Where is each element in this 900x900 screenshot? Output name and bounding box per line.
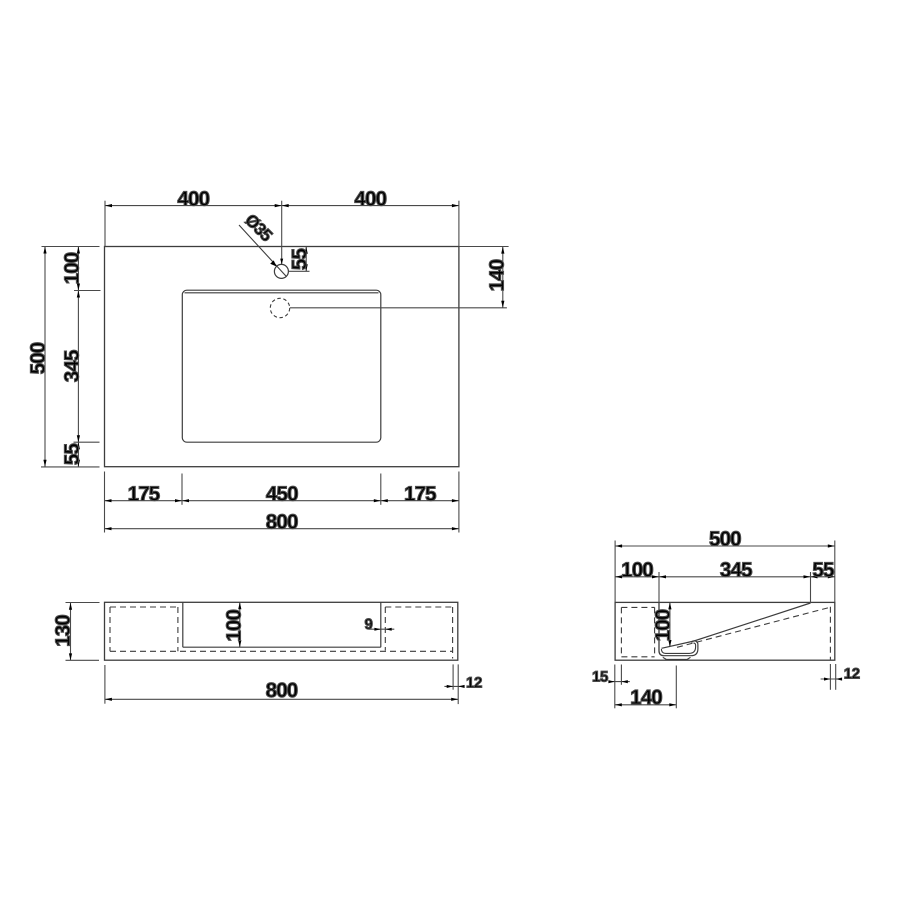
svg-text:12: 12 xyxy=(466,674,482,691)
svg-text:9: 9 xyxy=(364,616,372,633)
svg-text:55: 55 xyxy=(288,249,311,271)
svg-text:12: 12 xyxy=(844,665,860,682)
svg-text:130: 130 xyxy=(52,615,75,647)
svg-text:800: 800 xyxy=(266,510,298,533)
svg-text:100: 100 xyxy=(223,610,246,642)
svg-text:100: 100 xyxy=(652,609,675,641)
svg-text:500: 500 xyxy=(27,342,50,374)
svg-text:55: 55 xyxy=(812,558,834,581)
svg-text:15: 15 xyxy=(592,668,608,685)
svg-text:800: 800 xyxy=(266,679,298,702)
svg-text:100: 100 xyxy=(60,252,83,284)
svg-text:175: 175 xyxy=(128,482,160,505)
svg-text:175: 175 xyxy=(404,482,436,505)
svg-text:500: 500 xyxy=(709,527,741,550)
svg-text:100: 100 xyxy=(621,558,653,581)
svg-text:140: 140 xyxy=(630,686,662,709)
svg-text:345: 345 xyxy=(60,350,83,382)
svg-text:400: 400 xyxy=(177,187,209,210)
svg-text:400: 400 xyxy=(354,187,386,210)
svg-text:345: 345 xyxy=(720,558,752,581)
svg-text:Ø35: Ø35 xyxy=(241,210,276,245)
svg-text:450: 450 xyxy=(266,482,298,505)
svg-text:140: 140 xyxy=(485,259,508,291)
svg-text:55: 55 xyxy=(60,444,83,466)
